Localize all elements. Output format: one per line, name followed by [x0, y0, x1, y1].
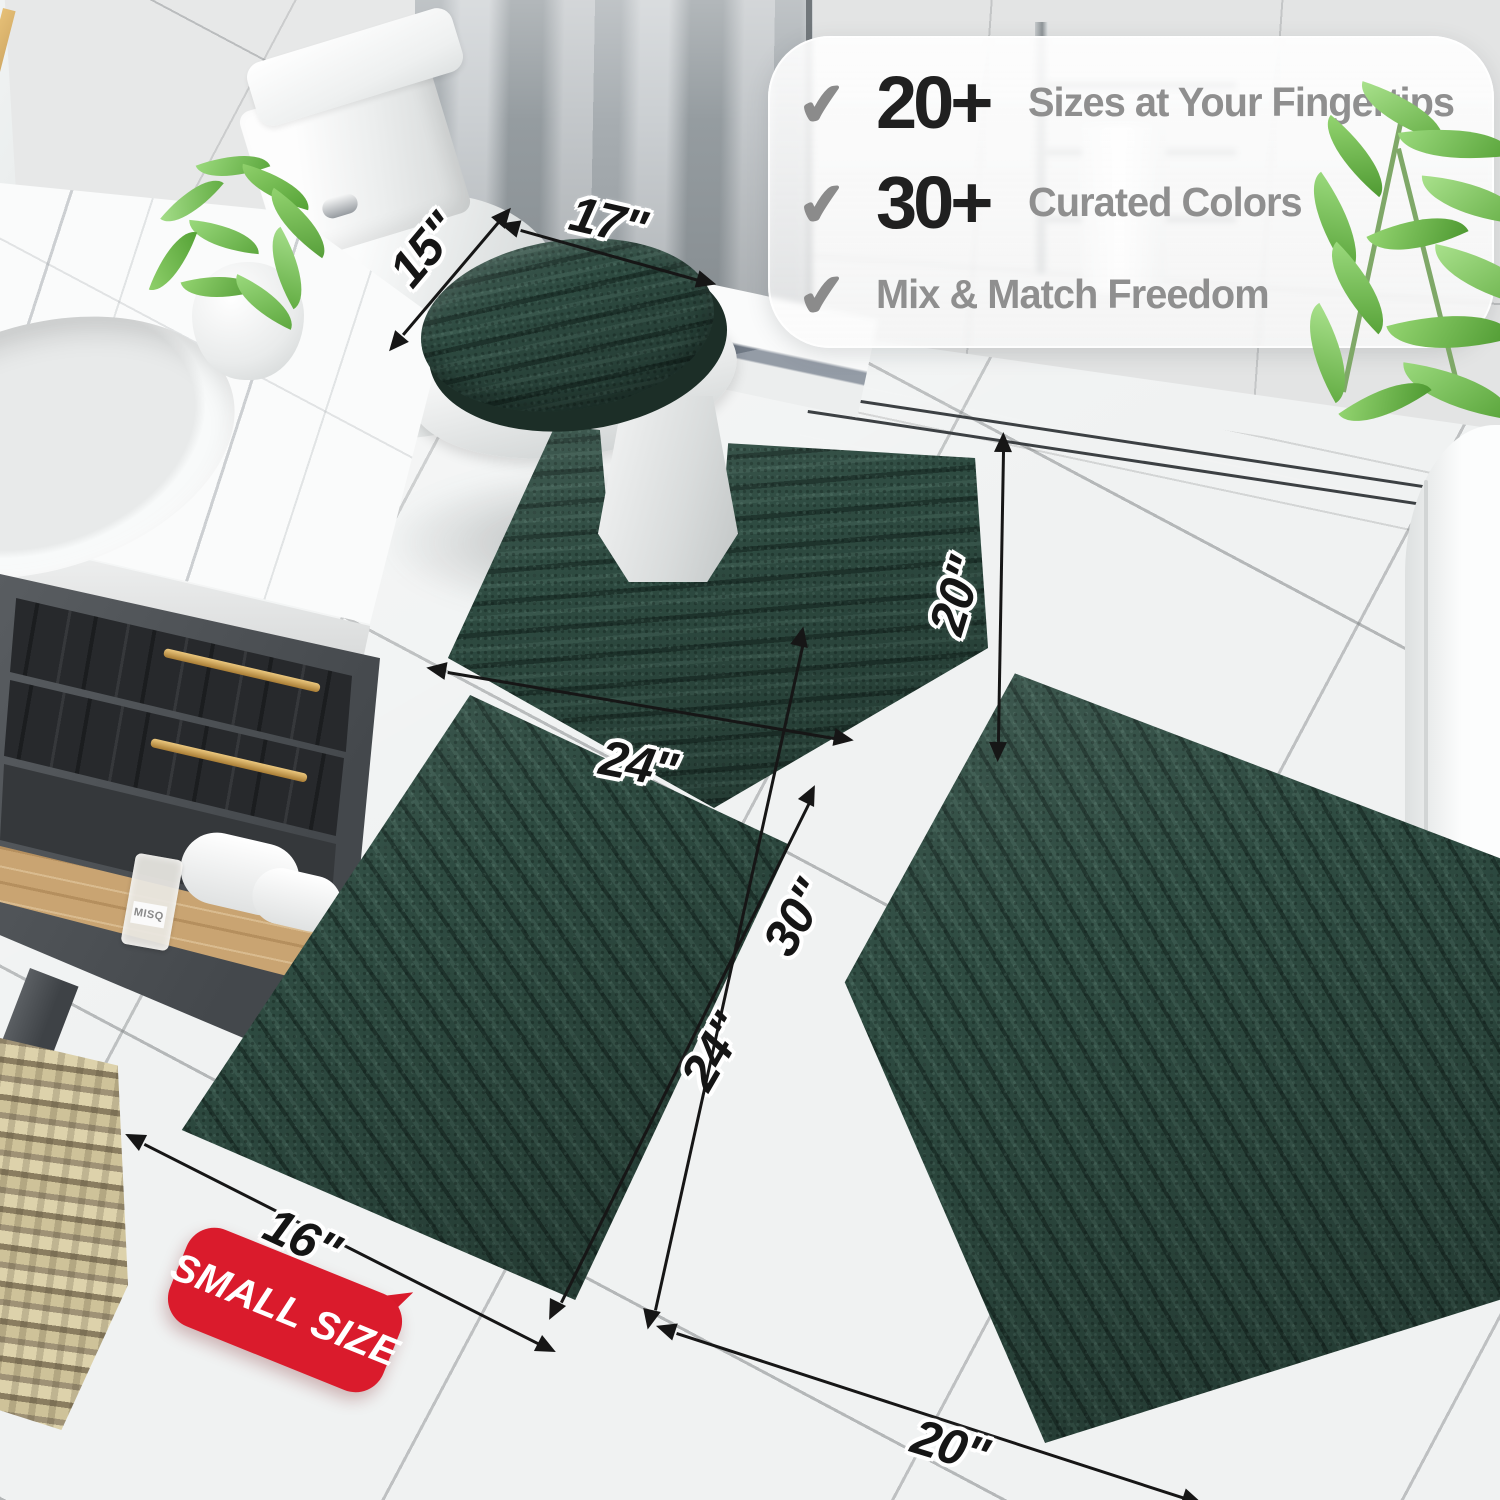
bathroom-scene: MISQ 15" 17" 20" 24" 24" 30" 16" 20" ✔ 2…: [0, 0, 1500, 1500]
arrowhead-icon: [988, 742, 1007, 771]
check-icon: ✔: [795, 165, 880, 241]
leaf-icon: [187, 220, 261, 254]
callout-number: 20+: [876, 60, 1028, 145]
check-icon: ✔: [795, 65, 880, 141]
arrowhead-icon: [994, 423, 1013, 452]
check-icon: ✔: [795, 256, 880, 332]
leaf-icon: [1418, 176, 1500, 225]
callout-number: 30+: [876, 160, 1028, 245]
corner-plant: [1250, 85, 1500, 435]
leaf-icon: [1288, 303, 1367, 403]
toilet-pedestal: [598, 396, 738, 582]
leaf-icon: [1386, 295, 1500, 369]
counter-plant: [128, 148, 358, 348]
perfume-bottle-label: MISQ: [130, 901, 167, 929]
callout-label: Mix & Match Freedom: [876, 271, 1269, 318]
